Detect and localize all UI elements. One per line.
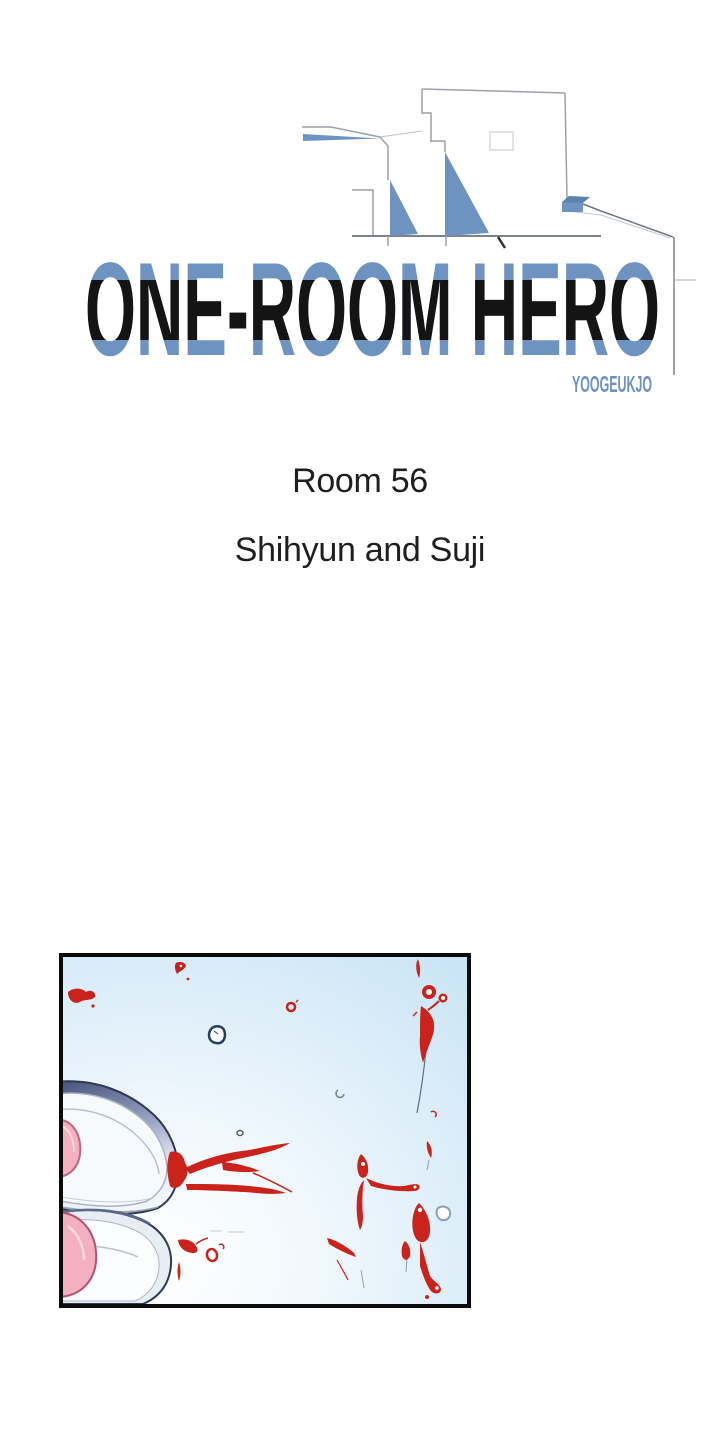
chapter-subtitle: Shihyun and Suji	[0, 533, 720, 567]
building-blue-accents	[303, 134, 590, 236]
author-name: YOOGEUKJO	[572, 371, 652, 397]
comic-panel	[59, 953, 471, 1308]
chapter-room-label: Room 56	[0, 464, 720, 498]
title-header-artwork: ONE-ROOM HERO ONE-ROOM HERO YOOGEUKJO	[0, 0, 720, 430]
box-top-face	[562, 196, 590, 203]
comic-panel-artwork	[63, 957, 467, 1304]
